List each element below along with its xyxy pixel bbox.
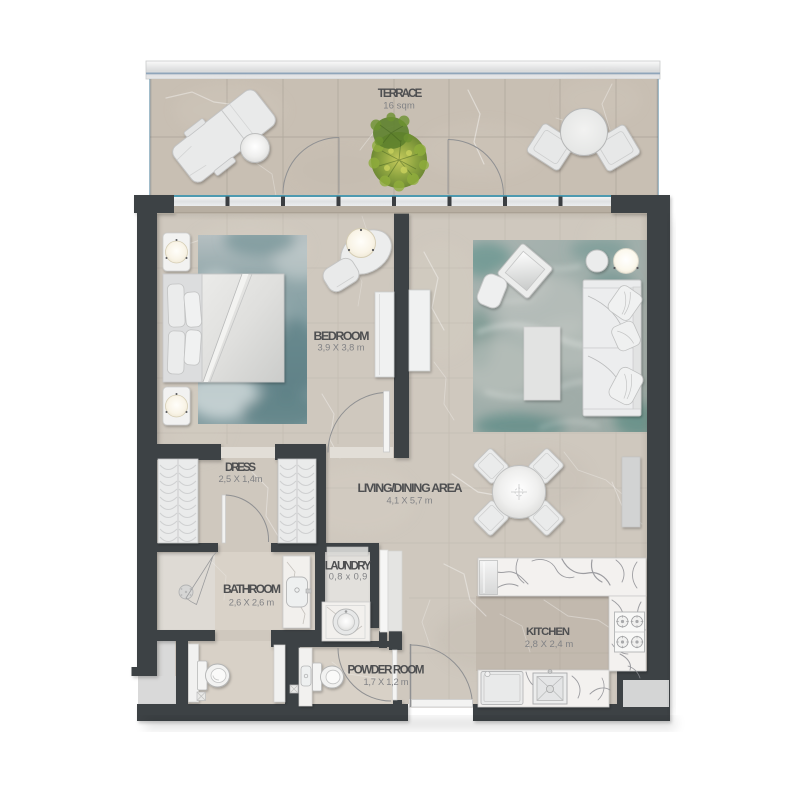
svg-text:2,6 X 2,6 m: 2,6 X 2,6 m	[229, 598, 275, 608]
svg-text:DRESS: DRESS	[225, 462, 256, 474]
svg-text:16 sqm: 16 sqm	[383, 101, 415, 112]
svg-text:1,7 X 1,2 m: 1,7 X 1,2 m	[364, 677, 409, 687]
svg-text:3,9 X 3,8 m: 3,9 X 3,8 m	[318, 343, 365, 353]
svg-text:0,8 x 0,9: 0,8 x 0,9	[329, 572, 368, 582]
svg-text:BATHROOM: BATHROOM	[223, 582, 281, 596]
svg-text:2,5 X 1,4m: 2,5 X 1,4m	[219, 474, 263, 484]
svg-text:POWDER ROOM: POWDER ROOM	[348, 665, 425, 677]
svg-text:LIVING/DINING AREA: LIVING/DINING AREA	[358, 481, 463, 495]
svg-text:KITCHEN: KITCHEN	[526, 626, 570, 638]
svg-text:2,8 X 2,4 m: 2,8 X 2,4 m	[525, 639, 574, 650]
svg-text:TERRACE: TERRACE	[378, 88, 423, 100]
svg-text:4,1 X 5,7 m: 4,1 X 5,7 m	[387, 496, 433, 506]
svg-text:BEDROOM: BEDROOM	[314, 329, 370, 343]
